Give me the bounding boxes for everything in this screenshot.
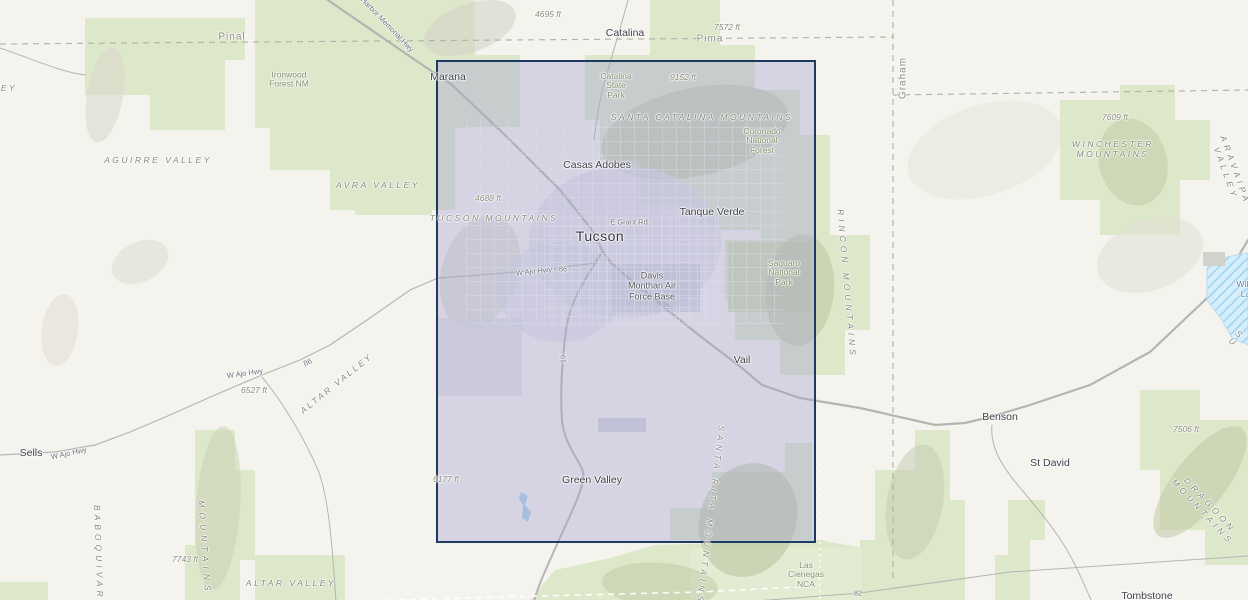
selection-rectangle[interactable]: [436, 60, 816, 543]
map-canvas[interactable]: PinalPimaGrahamCatalinaMaranaCasas Adobe…: [0, 0, 1248, 600]
